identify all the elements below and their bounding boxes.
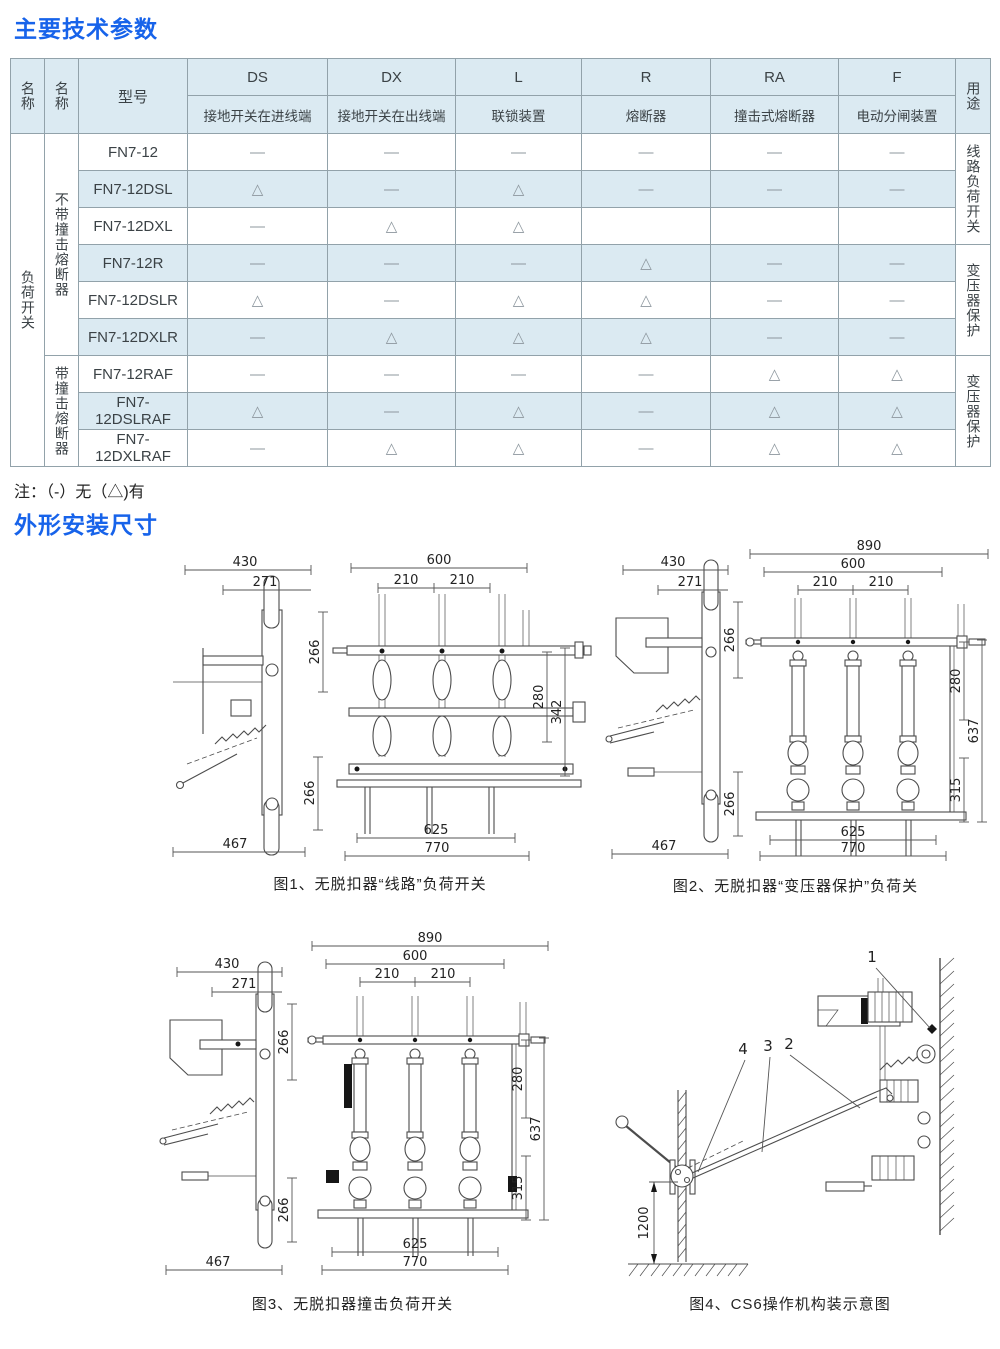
use-cell-2: 变压器保护 xyxy=(956,245,991,356)
header-row-codes: 名称 名称 型号 DS DX L R RA F 用途 xyxy=(11,59,991,96)
dim-label: 1200 xyxy=(637,1206,652,1239)
header-desc-l: 联锁装置 xyxy=(456,96,582,134)
dim-label: 280 xyxy=(511,1067,526,1092)
use-cell-3: 变压器保护 xyxy=(956,356,991,467)
table-row: 带撞击熔断器 FN7-12RAF — — — — △ △ 变压器保护 xyxy=(11,356,991,393)
header-code-dx: DX xyxy=(328,59,456,96)
figure-1-caption: 图1、无脱扣器“线路”负荷开关 xyxy=(165,873,595,894)
model-cell: FN7-12R xyxy=(79,245,188,282)
part-label-4: 4 xyxy=(738,1040,748,1058)
table-row: FN7-12DSLRAF △ — △ — △ △ xyxy=(11,393,991,430)
table-row: FN7-12DSL △ — △ — — — xyxy=(11,171,991,208)
header-desc-r: 熔断器 xyxy=(582,96,711,134)
dim-label: 770 xyxy=(425,841,450,856)
dim-label: 770 xyxy=(403,1255,428,1270)
figure-3: 430 271 266 266 467 xyxy=(150,930,555,1314)
dim-label: 467 xyxy=(223,837,248,852)
header-name-1: 名称 xyxy=(11,59,45,134)
model-cell: FN7-12DSLR xyxy=(79,282,188,319)
dim-label: 467 xyxy=(206,1255,231,1270)
dim-label: 271 xyxy=(253,575,278,590)
dim-label: 266 xyxy=(277,1030,292,1055)
dim-label: 637 xyxy=(529,1117,544,1142)
dim-label: 210 xyxy=(869,575,894,590)
figure-2: 430 271 266 266 467 890 600 xyxy=(598,540,993,896)
header-code-l: L xyxy=(456,59,582,96)
dim-label: 890 xyxy=(857,540,882,554)
header-model: 型号 xyxy=(79,59,188,134)
figure-3-caption: 图3、无脱扣器撞击负荷开关 xyxy=(150,1293,555,1314)
dim-label: 600 xyxy=(403,949,428,964)
dim-label: 890 xyxy=(418,931,443,946)
page-title-parameters: 主要技术参数 xyxy=(14,10,158,44)
dim-label: 625 xyxy=(841,825,866,840)
figure-2-caption: 图2、无脱扣器“变压器保护”负荷关 xyxy=(598,875,993,896)
page-title-dimensions: 外形安装尺寸 xyxy=(14,506,158,540)
dim-label: 271 xyxy=(678,575,703,590)
dim-label: 315 xyxy=(949,778,964,803)
header-desc-f: 电动分闸装置 xyxy=(839,96,956,134)
table-row: 负荷开关 不带撞击熔断器 FN7-12 — — — — — — 线路负荷开关 xyxy=(11,134,991,171)
figure-4-caption: 图4、CS6操作机构装示意图 xyxy=(580,1293,1000,1314)
dim-label: 210 xyxy=(375,967,400,982)
part-label-1: 1 xyxy=(867,948,877,966)
dim-label: 266 xyxy=(308,640,323,665)
model-cell: FN7-12DSLRAF xyxy=(79,393,188,430)
dim-label: 210 xyxy=(431,967,456,982)
catalog-page: { "titles": {"params": "主要技术参数", "dimens… xyxy=(0,0,1000,1349)
figure-3-drawing: 430 271 266 266 467 xyxy=(150,930,555,1285)
dim-label: 625 xyxy=(403,1237,428,1252)
dim-label: 280 xyxy=(949,669,964,694)
dim-label: 210 xyxy=(394,573,419,588)
model-cell: FN7-12DXL xyxy=(79,208,188,245)
header-code-ra: RA xyxy=(711,59,839,96)
dim-label: 271 xyxy=(232,977,257,992)
header-desc-ds: 接地开关在进线端 xyxy=(188,96,328,134)
model-cell: FN7-12 xyxy=(79,134,188,171)
header-code-r: R xyxy=(582,59,711,96)
model-cell: FN7-12DSL xyxy=(79,171,188,208)
dim-label: 210 xyxy=(450,573,475,588)
header-code-ds: DS xyxy=(188,59,328,96)
table-row: FN7-12R — — — △ — — 变压器保护 xyxy=(11,245,991,282)
dim-label: 430 xyxy=(661,555,686,570)
model-cell: FN7-12DXLRAF xyxy=(79,430,188,467)
dim-label: 600 xyxy=(841,557,866,572)
dim-label: 637 xyxy=(967,719,982,744)
dim-label: 770 xyxy=(841,841,866,856)
dim-label: 430 xyxy=(233,555,258,570)
dim-label: 210 xyxy=(813,575,838,590)
header-use: 用途 xyxy=(956,59,991,134)
dim-label: 430 xyxy=(215,957,240,972)
figure-4-drawing: 1 4 3 2 1200 xyxy=(580,930,1000,1285)
use-cell-1: 线路负荷开关 xyxy=(956,134,991,245)
dim-label: 266 xyxy=(723,628,738,653)
dim-label: 266 xyxy=(277,1198,292,1223)
category-cell: 负荷开关 xyxy=(11,134,45,467)
figure-2-drawing: 430 271 266 266 467 890 600 xyxy=(598,540,993,867)
group-cell-1: 不带撞击熔断器 xyxy=(45,134,79,356)
table-row: FN7-12DXLRAF — △ △ — △ △ xyxy=(11,430,991,467)
part-label-2: 2 xyxy=(784,1035,794,1053)
header-desc-ra: 撞击式熔断器 xyxy=(711,96,839,134)
figure-4: 1 4 3 2 1200 图4、CS6操作机构装示意图 xyxy=(580,930,1000,1314)
dim-label: 342 xyxy=(550,700,565,725)
table-legend-note: 注：（-）无（△)有 xyxy=(14,478,145,502)
parameters-table: 名称 名称 型号 DS DX L R RA F 用途 接地开关在进线端 接地开关… xyxy=(10,58,991,467)
dim-label: 266 xyxy=(723,792,738,817)
table-row: FN7-12DSLR △ — △ △ — — xyxy=(11,282,991,319)
figure-1-drawing: 430 271 266 266 467 600 210 210 xyxy=(165,552,595,865)
dim-label: 280 xyxy=(532,685,547,710)
header-desc-dx: 接地开关在出线端 xyxy=(328,96,456,134)
dim-label: 600 xyxy=(427,553,452,568)
header-code-f: F xyxy=(839,59,956,96)
dim-label: 315 xyxy=(511,1176,526,1201)
dim-label: 266 xyxy=(303,781,318,806)
model-cell: FN7-12DXLR xyxy=(79,319,188,356)
dim-label: 625 xyxy=(424,823,449,838)
model-cell: FN7-12RAF xyxy=(79,356,188,393)
group-cell-2: 带撞击熔断器 xyxy=(45,356,79,467)
table-row: FN7-12DXL — △ △ xyxy=(11,208,991,245)
table-row: FN7-12DXLR — △ △ △ — — xyxy=(11,319,991,356)
dim-label: 467 xyxy=(652,839,677,854)
figure-1: 430 271 266 266 467 600 210 210 xyxy=(165,552,595,894)
header-name-2: 名称 xyxy=(45,59,79,134)
part-label-3: 3 xyxy=(763,1037,773,1055)
